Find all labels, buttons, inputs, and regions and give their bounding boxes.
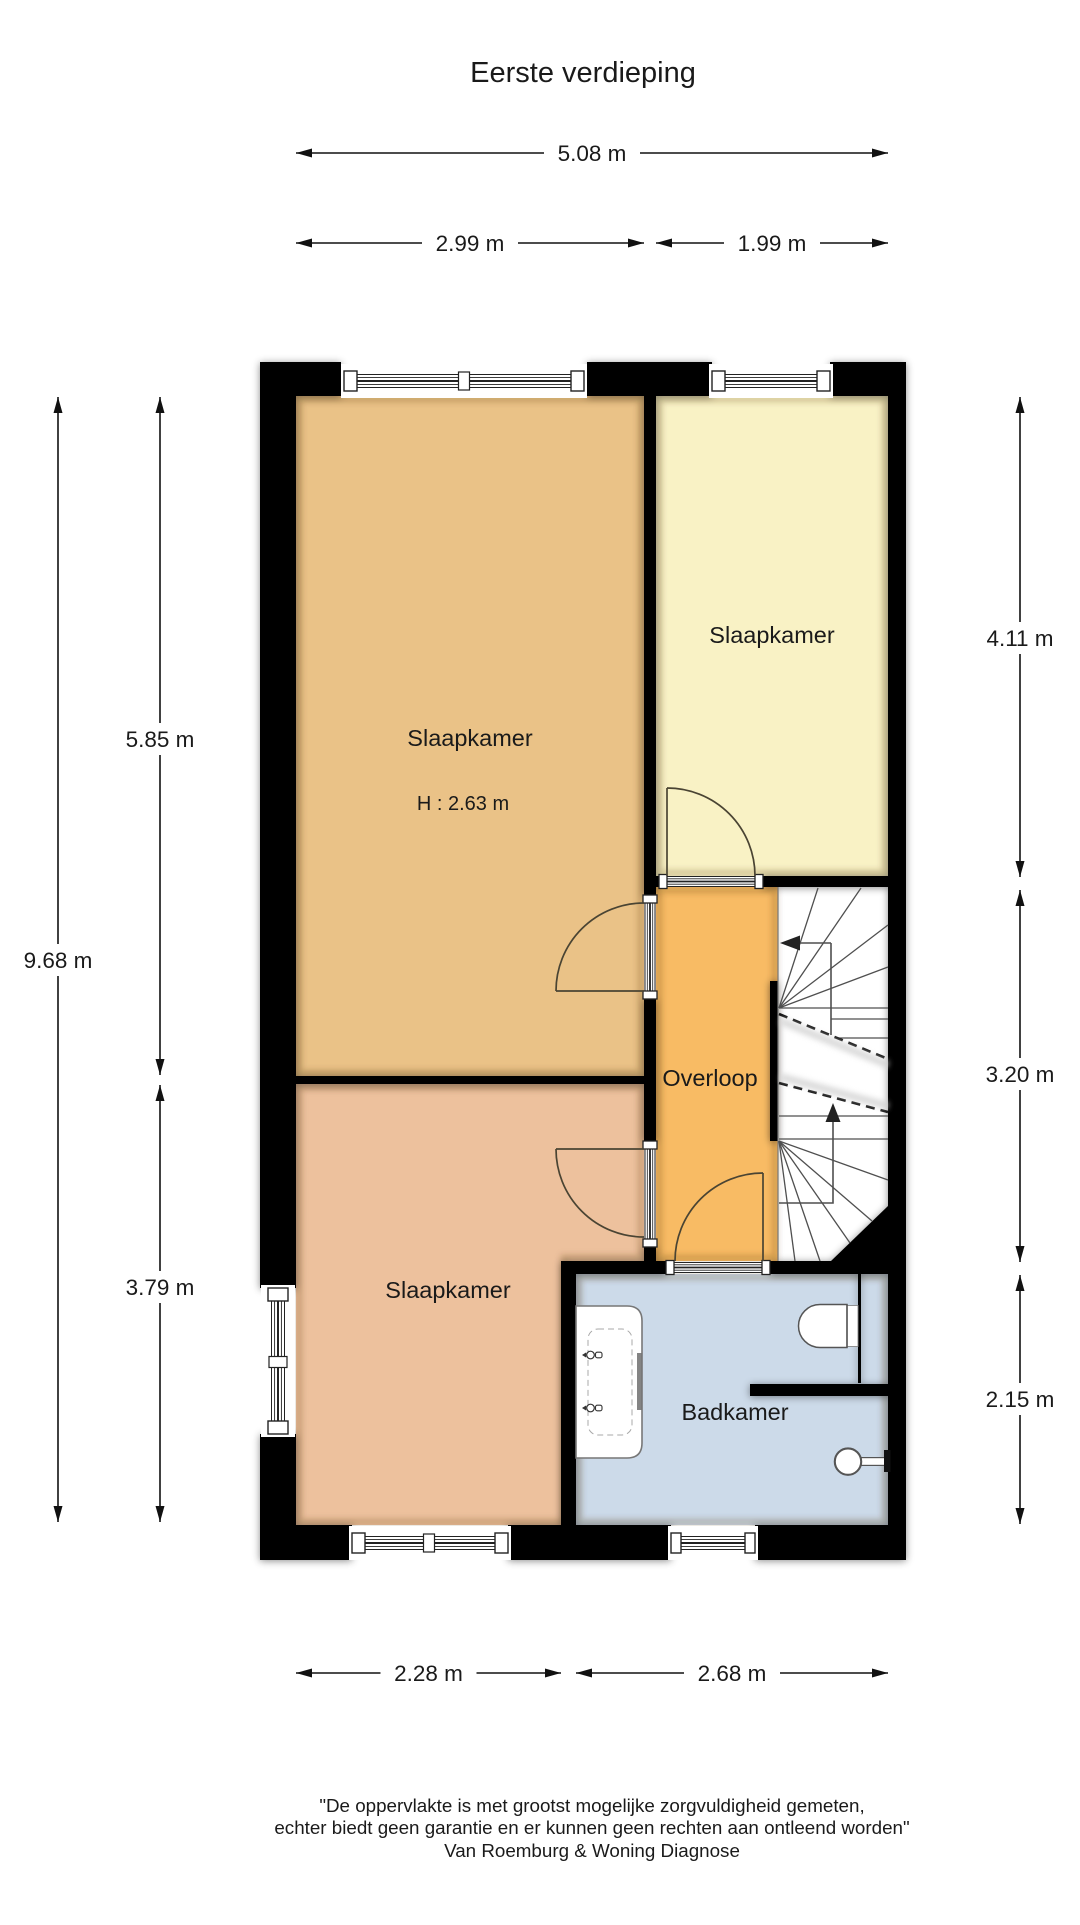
svg-text:5.85 m: 5.85 m — [126, 727, 195, 752]
svg-text:Overloop: Overloop — [662, 1065, 757, 1091]
svg-text:2.99 m: 2.99 m — [436, 231, 505, 256]
svg-text:2.28 m: 2.28 m — [394, 1661, 463, 1686]
svg-text:9.68 m: 9.68 m — [24, 948, 93, 973]
svg-text:echter biedt geen garantie en: echter biedt geen garantie en er kunnen … — [274, 1817, 909, 1838]
svg-text:3.79 m: 3.79 m — [126, 1275, 195, 1300]
svg-text:2.15 m: 2.15 m — [986, 1387, 1055, 1412]
svg-text:Slaapkamer: Slaapkamer — [709, 622, 835, 648]
svg-text:"De oppervlakte is met grootst: "De oppervlakte is met grootst mogelijke… — [319, 1795, 864, 1816]
svg-text:2.68 m: 2.68 m — [698, 1661, 767, 1686]
svg-text:Eerste verdieping: Eerste verdieping — [470, 57, 696, 89]
svg-text:H : 2.63 m: H : 2.63 m — [417, 793, 509, 815]
svg-text:Slaapkamer: Slaapkamer — [385, 1277, 511, 1303]
svg-text:1.99 m: 1.99 m — [738, 231, 807, 256]
svg-text:Slaapkamer: Slaapkamer — [407, 725, 533, 751]
svg-text:Badkamer: Badkamer — [681, 1399, 788, 1425]
svg-text:3.20 m: 3.20 m — [986, 1062, 1055, 1087]
svg-text:Van Roemburg & Woning Diagnose: Van Roemburg & Woning Diagnose — [444, 1840, 740, 1861]
svg-text:5.08 m: 5.08 m — [558, 141, 627, 166]
svg-text:4.11 m: 4.11 m — [986, 626, 1053, 651]
